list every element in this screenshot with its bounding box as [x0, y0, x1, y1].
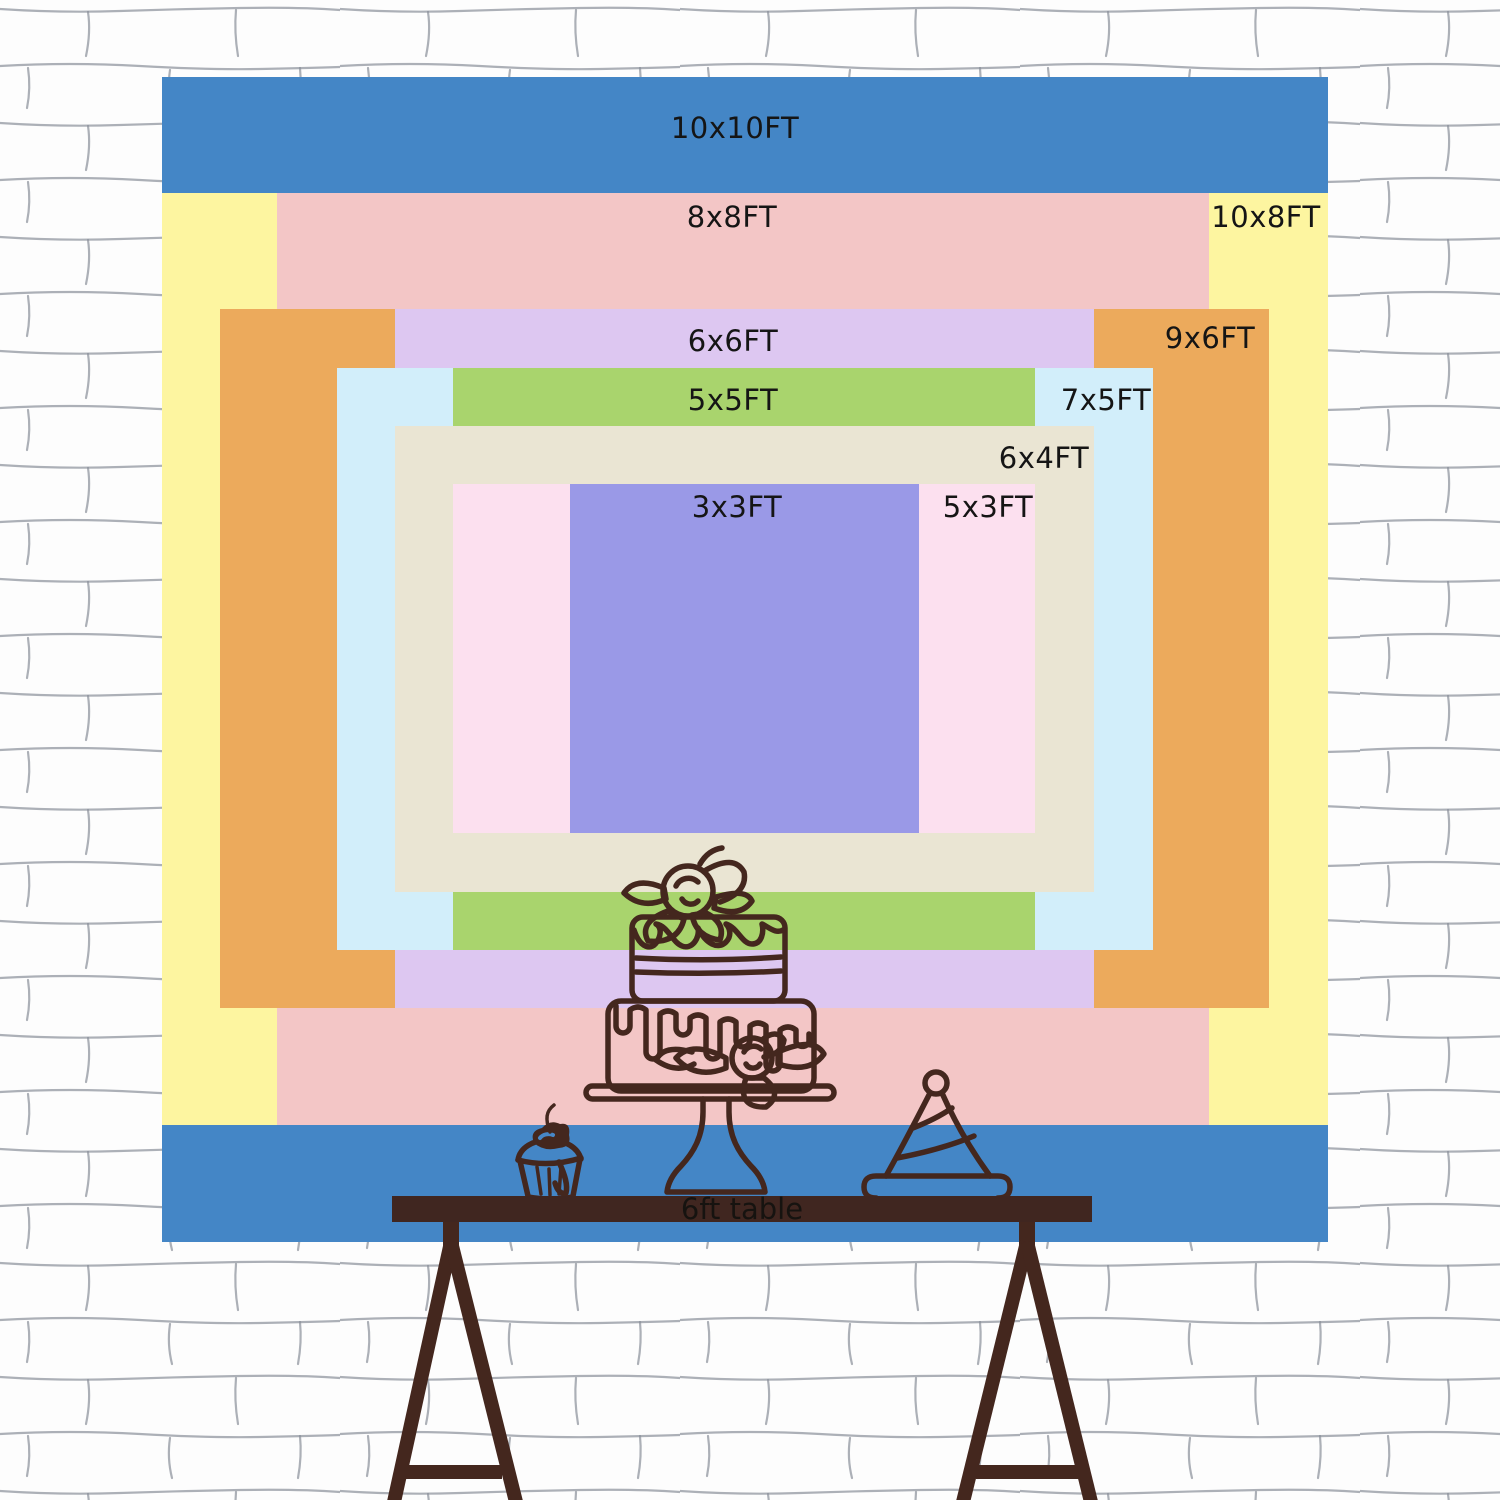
size-label-6x6ft: 6x6FT: [688, 324, 778, 358]
size-label-6x4ft: 6x4FT: [999, 441, 1089, 475]
size-label-10x8ft: 10x8FT: [1211, 200, 1320, 234]
size-label-5x5ft: 5x5FT: [688, 383, 778, 417]
size-label-7x5ft: 7x5FT: [1061, 383, 1151, 417]
size-rect-3x3ft: [570, 484, 919, 833]
table-label: 6ft table: [681, 1196, 803, 1222]
size-label-5x3ft: 5x3FT: [943, 490, 1033, 524]
backdrop-size-chart: 10x10FT 10x8FT 8x8FT 9x6FT 6x6FT 7x5FT 5…: [0, 0, 1500, 1500]
size-label-8x8ft: 8x8FT: [687, 200, 777, 234]
size-label-10x10ft: 10x10FT: [671, 111, 799, 145]
table-bar: 6ft table: [392, 1196, 1092, 1222]
size-label-3x3ft: 3x3FT: [692, 490, 782, 524]
size-label-9x6ft: 9x6FT: [1165, 321, 1255, 355]
